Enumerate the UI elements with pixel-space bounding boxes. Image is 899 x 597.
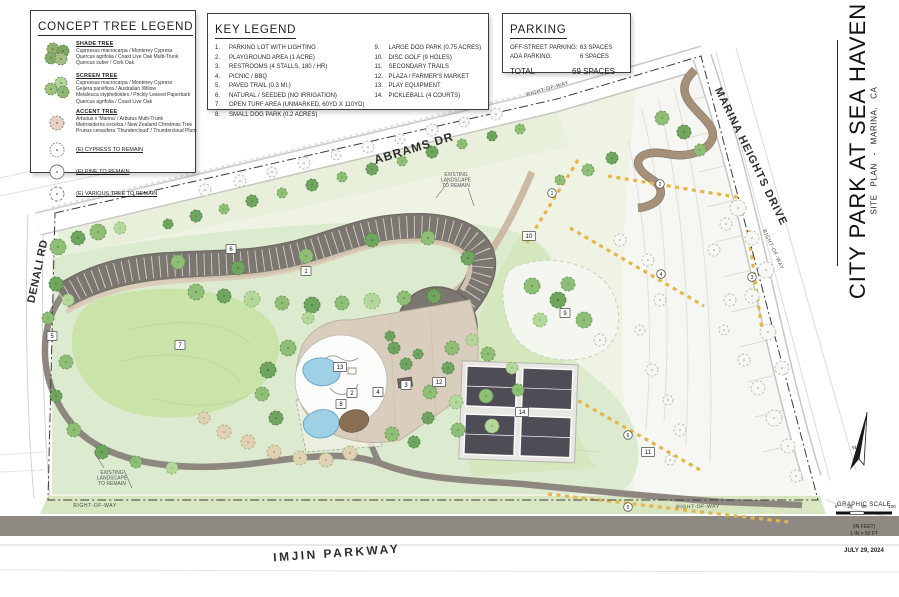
disc-golf-hole-marker: 3 [748, 273, 757, 282]
tree-symbol [246, 195, 258, 207]
tree-symbol [481, 347, 495, 361]
svg-text:5: 5 [627, 505, 630, 511]
tree-symbol [42, 312, 54, 324]
key-item-label: LARGE DOG PARK (0.75 ACRES) [388, 44, 481, 54]
tree-symbol [190, 210, 202, 222]
existing-tree-symbol [267, 167, 277, 177]
key-marker: 12 [433, 378, 446, 387]
shade-tree-cluster-icon [42, 41, 72, 69]
tree-legend-group: SCREEN TREECupressus macrocarpa / Monter… [38, 73, 188, 105]
key-legend-item: 12.PLAZA / FARMER'S MARKET [374, 73, 481, 83]
accent-tree-icon [42, 109, 72, 137]
key-marker: 11 [642, 448, 655, 457]
scale-tick-label: 50 [861, 504, 866, 509]
key-legend-column-1: 1.PARKING LOT WITH LIGHTING2.PLAYGROUND … [215, 44, 364, 120]
parking-row-value: 6 SPACES [580, 53, 623, 62]
tree-legend-groups: SHADE TREECupressus macrocarpa / Montere… [38, 41, 188, 137]
concept-tree-legend-box: CONCEPT TREE LEGEND SHADE TREECupressus … [30, 10, 196, 173]
tree-symbol [364, 293, 380, 309]
svg-text:10: 10 [526, 234, 533, 240]
disc-golf-hole-marker: 4 [657, 270, 666, 279]
parking-total-value: 69 SPACES [572, 67, 615, 76]
project-subtitle: SITE PLAN - MARINA, CA [870, 51, 881, 251]
key-legend-item: 5.PAVED TRAIL (0.3 MI.) [215, 82, 364, 92]
svg-text:2: 2 [659, 182, 662, 188]
tree-symbol [397, 291, 411, 305]
shade-tree-cluster-icon [38, 41, 76, 69]
tree-symbol [388, 342, 400, 354]
key-marker: 10 [523, 232, 536, 241]
tree-symbol [244, 291, 260, 307]
tree-symbol [217, 425, 231, 439]
parking-row-label: ADA PARKING: [510, 53, 580, 62]
tree-symbol [114, 222, 126, 234]
key-item-number: 3. [215, 63, 229, 73]
existing-tree-symbol [758, 262, 774, 278]
scale-ratio-note: 1 IN = 50 FT [833, 531, 895, 537]
tree-symbol [561, 277, 575, 291]
tree-symbol [694, 144, 706, 156]
tree-symbol [277, 188, 287, 198]
key-item-number: 5. [215, 82, 229, 92]
existing-pine-symbol-icon [47, 163, 67, 181]
tree-symbol [427, 289, 441, 303]
existing-tree-label: (E) VARIOUS TREE TO REMAIN [76, 191, 157, 197]
key-item-number: 6. [215, 92, 229, 102]
tree-group-text: SCREEN TREECupressus macrocarpa / Monter… [76, 73, 188, 105]
existing-landscape-note: EXISTINGLANDSCAPETO REMAIN [441, 172, 472, 189]
tree-symbol [343, 446, 357, 460]
road-label: DENALI RD [26, 239, 51, 304]
tree-symbol [533, 313, 547, 327]
tree-symbol [50, 239, 66, 255]
tree-symbol [550, 292, 566, 308]
existing-tree-symbol [635, 325, 645, 335]
key-legend-item: 8.SMALL DOG PARK (0.2 ACRES) [215, 111, 364, 121]
tree-symbol [90, 224, 106, 240]
existing-tree-symbol [790, 470, 802, 482]
tree-symbol [217, 289, 231, 303]
tree-symbol [421, 231, 435, 245]
key-item-label: PLAZA / FARMER'S MARKET [388, 73, 481, 83]
key-legend-column-2: 9.LARGE DOG PARK (0.75 ACRES)10.DISC GOL… [374, 44, 481, 120]
graphic-scale-bar: 02550100 [836, 510, 894, 516]
existing-tree-symbol [708, 244, 720, 256]
tree-symbol [67, 423, 81, 437]
key-marker: 7 [175, 341, 185, 350]
key-item-number: 10. [374, 54, 388, 64]
tree-group-text: SHADE TREECupressus macrocarpa / Montere… [76, 41, 188, 67]
key-marker: 13 [334, 363, 347, 372]
tree-legend-group: SHADE TREECupressus macrocarpa / Montere… [38, 41, 188, 69]
key-legend-item: 3.RESTROOMS (4 STALLS, 180 / HR) [215, 63, 364, 73]
north-label: N [852, 445, 858, 452]
key-marker: 1 [301, 267, 311, 276]
key-item-label: PLAY EQUIPMENT [388, 82, 481, 92]
key-legend-item: 9.LARGE DOG PARK (0.75 ACRES) [374, 44, 481, 54]
tree-symbol [582, 164, 594, 176]
key-item-label: PICKLEBALL (4 COURTS) [388, 92, 481, 102]
scale-tick-label: 100 [888, 504, 896, 509]
title-block-divider [837, 40, 838, 266]
key-item-label: PAVED TRAIL (0.3 MI.) [229, 82, 364, 92]
parking-total-label: TOTAL [510, 67, 572, 76]
existing-tree-symbol [665, 455, 675, 465]
svg-text:12: 12 [436, 380, 443, 386]
existing-tree-symbol [674, 424, 686, 436]
existing-tree-label: (E) CYPRESS TO REMAIN [76, 147, 143, 153]
key-marker: 14 [516, 408, 529, 417]
existing-pine-symbol-icon [38, 163, 76, 181]
right-of-way-label: RIGHT-OF-WAY [73, 503, 117, 509]
plan-date: JULY 29, 2024 [833, 548, 895, 554]
existing-tree-symbol [298, 157, 310, 169]
key-item-number: 12. [374, 73, 388, 83]
key-legend-item: 2.PLAYGROUND AREA (1 ACRE) [215, 54, 364, 64]
key-marker: 5 [47, 332, 57, 341]
disc-golf-hole-marker: 5 [624, 503, 633, 512]
tree-symbol [293, 451, 307, 465]
existing-tree-symbol [724, 294, 736, 306]
tree-legend-existing: (E) CYPRESS TO REMAIN(E) PINE TO REMAIN(… [38, 141, 188, 203]
tree-symbol [677, 125, 691, 139]
parking-row: ADA PARKING:6 SPACES [510, 53, 623, 62]
existing-tree-symbol [395, 134, 405, 144]
screen-tree-cluster-icon [42, 73, 72, 101]
key-item-label: NATURAL / SEEDED (NO IRRIGATION) [229, 92, 364, 102]
disc-golf-hole-marker: 2 [656, 180, 665, 189]
tree-symbol [385, 331, 395, 341]
tree-symbol [198, 412, 210, 424]
tree-symbol [302, 312, 314, 324]
existing-tree-symbol [362, 141, 374, 153]
parking-row: OFF-STREET PARKING:63 SPACES [510, 44, 623, 53]
tree-symbol [280, 340, 296, 356]
key-item-number: 9. [374, 44, 388, 54]
key-legend-columns: 1.PARKING LOT WITH LIGHTING2.PLAYGROUND … [215, 44, 481, 120]
tree-symbol [466, 334, 478, 346]
key-marker: 3 [401, 381, 411, 390]
tree-symbol [449, 395, 463, 409]
tree-legend-existing-row: (E) CYPRESS TO REMAIN [38, 141, 188, 159]
existing-tree-symbol [234, 175, 246, 187]
screen-tree-cluster-icon [38, 73, 76, 101]
existing-tree-symbol [646, 364, 658, 376]
existing-tree-symbol [490, 108, 502, 120]
concept-tree-legend-title: CONCEPT TREE LEGEND [38, 21, 193, 36]
existing-various-symbol-icon [47, 185, 67, 203]
tree-symbol [457, 139, 467, 149]
existing-tree-symbol [642, 254, 654, 266]
existing-tree-symbol [745, 231, 759, 245]
existing-tree-symbol [781, 439, 795, 453]
scale-tick-label: 25 [847, 504, 852, 509]
existing-tree-symbol [663, 395, 673, 405]
key-item-label: RESTROOMS (4 STALLS, 180 / HR) [229, 63, 364, 73]
existing-cypress-symbol-icon [47, 141, 67, 159]
tree-symbol [408, 436, 420, 448]
key-item-number: 1. [215, 44, 229, 54]
parking-row-label: OFF-STREET PARKING: [510, 44, 580, 53]
tree-symbol [306, 179, 318, 191]
tree-symbol [413, 349, 423, 359]
key-item-label: OPEN TURF AREA (UNMARKED, 60YD X 110YD) [229, 101, 364, 111]
tree-symbol [62, 294, 74, 306]
key-legend-item: 11.SECONDARY TRAILS [374, 63, 481, 73]
key-legend-item: 13.PLAY EQUIPMENT [374, 82, 481, 92]
key-legend-item: 1.PARKING LOT WITH LIGHTING [215, 44, 364, 54]
existing-various-symbol-icon [38, 185, 76, 203]
key-legend-item: 10.DISC GOLF (9 HOLES) [374, 54, 481, 64]
tree-species: Prunus cerasifera 'Thundercloud' / Thund… [76, 128, 188, 134]
tree-symbol [524, 278, 540, 294]
tree-legend-group: ACCENT TREEArbutus x 'Marina' / Arbutus … [38, 109, 188, 137]
svg-text:1: 1 [551, 191, 554, 197]
svg-text:6: 6 [627, 433, 630, 439]
disc-golf-hole-marker: 1 [548, 189, 557, 198]
key-item-number: 14. [374, 92, 388, 102]
key-legend-item: 14.PICKLEBALL (4 COURTS) [374, 92, 481, 102]
tree-symbol [166, 462, 178, 474]
key-legend-item: 7.OPEN TURF AREA (UNMARKED, 60YD X 110YD… [215, 101, 364, 111]
key-item-label: PARKING LOT WITH LIGHTING [229, 44, 364, 54]
tree-symbol [299, 249, 313, 263]
key-legend-item: 6.NATURAL / SEEDED (NO IRRIGATION) [215, 92, 364, 102]
key-marker: 8 [336, 400, 346, 409]
tree-symbol [267, 445, 281, 459]
tree-symbol [385, 427, 399, 441]
key-marker: 6 [226, 245, 236, 254]
right-of-way-label: RIGHT-OF-WAY [676, 504, 720, 511]
existing-landscape-note: EXISTINGLANDSCAPETO REMAIN [97, 470, 128, 487]
existing-tree-symbol [720, 218, 732, 230]
tree-species: Quercus agrifolia / Coast Live Oak [76, 99, 188, 105]
key-marker: 4 [373, 388, 383, 397]
key-item-number: 8. [215, 111, 229, 121]
project-title: CITY PARK AT SEA HAVEN [845, 1, 871, 301]
existing-tree-symbol [760, 324, 776, 340]
key-legend-title: KEY LEGEND [215, 24, 296, 39]
existing-tree-label: (E) PINE TO REMAIN [76, 169, 130, 175]
tree-symbol [171, 255, 185, 269]
tree-symbol [515, 124, 525, 134]
svg-text:11: 11 [645, 450, 652, 456]
existing-tree-symbol [775, 361, 789, 375]
key-item-label: SECONDARY TRAILS [388, 63, 481, 73]
key-marker: 2 [347, 389, 357, 398]
tree-symbol [655, 111, 669, 125]
tree-symbol [442, 362, 454, 374]
scale-tick-label: 0 [835, 504, 838, 509]
tree-symbol [479, 389, 493, 403]
existing-tree-symbol [745, 289, 759, 303]
existing-tree-symbol [751, 381, 765, 395]
tree-symbol [400, 358, 412, 370]
tree-symbol [231, 261, 245, 275]
tree-group-name: ACCENT TREE [76, 109, 188, 115]
key-legend-item: 4.PICNIC / BBQ [215, 73, 364, 83]
parking-total-row: TOTAL 69 SPACES [510, 67, 623, 76]
parking-row-value: 63 SPACES [580, 44, 623, 53]
disc-golf-hole-marker: 6 [624, 431, 633, 440]
tree-symbol [269, 411, 283, 425]
tree-group-text: ACCENT TREEArbutus x 'Marina' / Arbutus … [76, 109, 188, 135]
tree-symbol [365, 233, 379, 247]
tree-symbol [255, 387, 269, 401]
imjin-edge-line [0, 570, 899, 572]
key-item-label: PICNIC / BBQ [229, 73, 364, 83]
key-item-label: DISC GOLF (9 HOLES) [388, 54, 481, 64]
tree-symbol [49, 277, 63, 291]
tree-symbol [71, 231, 85, 245]
tree-symbol [555, 175, 565, 185]
key-item-number: 2. [215, 54, 229, 64]
tree-symbol [50, 390, 62, 402]
tree-symbol [487, 131, 497, 141]
tree-symbol [188, 284, 204, 300]
key-item-label: SMALL DOG PARK (0.2 ACRES) [229, 111, 364, 121]
tree-symbol [337, 172, 347, 182]
tree-symbol [219, 204, 229, 214]
tree-symbol [506, 362, 518, 374]
key-item-number: 4. [215, 73, 229, 83]
existing-tree-symbol [766, 410, 782, 426]
key-marker: 9 [560, 309, 570, 318]
tree-symbol [275, 296, 289, 310]
tree-symbol [485, 419, 499, 433]
existing-cypress-symbol-icon [38, 141, 76, 159]
key-item-number: 13. [374, 82, 388, 92]
existing-tree-symbol [614, 234, 626, 246]
key-item-number: 11. [374, 63, 388, 73]
tree-symbol [423, 385, 437, 399]
tree-symbol [260, 362, 276, 378]
tree-symbol [304, 297, 320, 313]
tree-symbol [422, 412, 434, 424]
key-item-number: 7. [215, 101, 229, 111]
tree-symbol [130, 456, 142, 468]
key-item-label: PLAYGROUND AREA (1 ACRE) [229, 54, 364, 64]
tree-symbol [461, 251, 475, 265]
existing-tree-symbol [331, 150, 341, 160]
tree-legend-existing-row: (E) VARIOUS TREE TO REMAIN [38, 185, 188, 203]
scale-unit-note: (IN FEET) [833, 524, 895, 530]
imjin-road [0, 516, 899, 536]
existing-tree-symbol [719, 325, 729, 335]
tree-symbol [59, 355, 73, 369]
north-arrow-icon: N [840, 410, 880, 482]
tree-symbol [319, 453, 333, 467]
existing-tree-symbol [730, 200, 746, 216]
tree-symbol [241, 435, 255, 449]
tree-symbol [445, 341, 459, 355]
tree-species: Quercus suber / Cork Oak [76, 60, 188, 66]
tree-group-name: SCREEN TREE [76, 73, 188, 79]
tree-legend-existing-row: (E) PINE TO REMAIN [38, 163, 188, 181]
tree-symbol [606, 152, 618, 164]
existing-tree-symbol [654, 294, 666, 306]
tree-group-name: SHADE TREE [76, 41, 188, 47]
parking-rows: OFF-STREET PARKING:63 SPACESADA PARKING:… [510, 44, 623, 61]
accent-tree-icon [38, 109, 76, 137]
existing-tree-symbol [738, 354, 750, 366]
tree-species: Melaleuca styphelioides / Prickly Leaved… [76, 92, 188, 98]
svg-text:4: 4 [660, 272, 663, 278]
denali-road-curb [26, 214, 34, 498]
parking-box: PARKING OFF-STREET PARKING:63 SPACESADA … [502, 13, 631, 73]
svg-text:14: 14 [519, 410, 526, 416]
svg-text:13: 13 [337, 365, 344, 371]
tree-symbol [335, 296, 349, 310]
key-legend-box: KEY LEGEND 1.PARKING LOT WITH LIGHTING2.… [207, 13, 489, 110]
parking-title: PARKING [510, 24, 567, 39]
existing-tree-symbol [199, 184, 211, 196]
tree-symbol [576, 312, 592, 328]
tree-symbol [512, 384, 524, 396]
existing-tree-symbol [594, 334, 606, 346]
site-plan-sheet: 123456 1234567891011121314 ABRAMS DRMARI… [0, 0, 899, 597]
svg-text:3: 3 [751, 275, 754, 281]
tree-symbol [451, 423, 465, 437]
tree-symbol [163, 219, 173, 229]
